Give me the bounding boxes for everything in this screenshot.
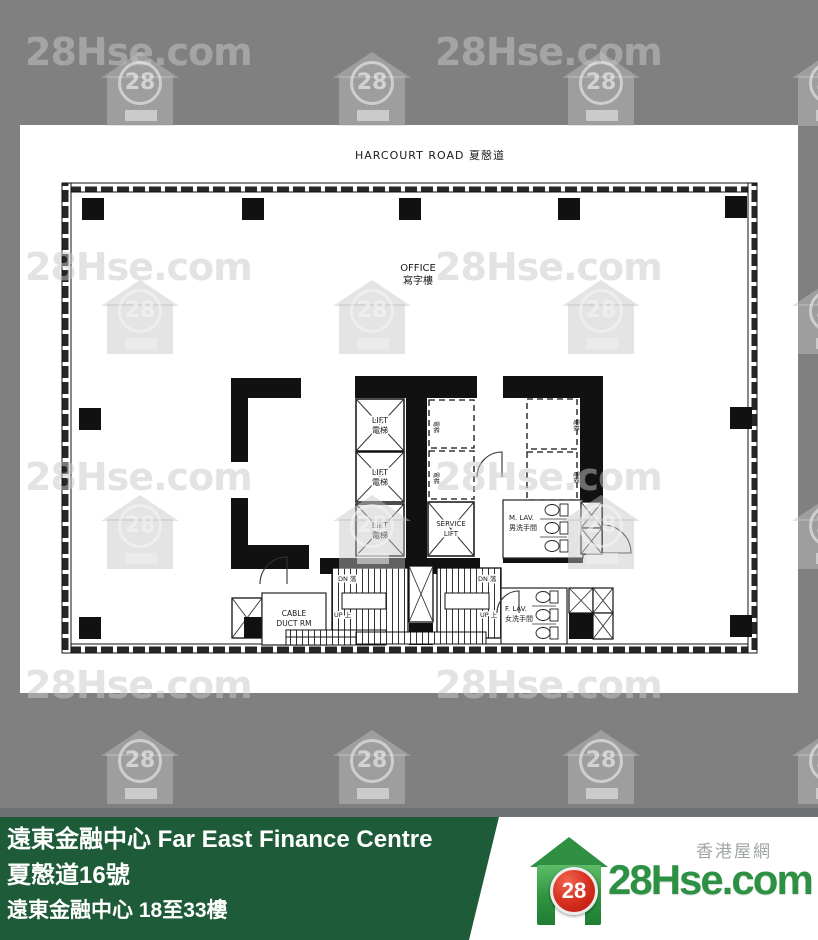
watermark-28-ring: 28	[809, 289, 818, 333]
staircase-right: DN 落 UP 上	[437, 568, 501, 638]
floorplan-drawing: HARCOURT ROAD 夏慤道 OFFICE 寫字樓	[20, 125, 798, 693]
watermark-roof	[792, 52, 818, 78]
office-label-zh: 寫字樓	[403, 274, 433, 287]
watermark-base	[357, 788, 389, 799]
watermark-house-logo-icon: 28	[792, 730, 818, 804]
watermark-base	[586, 110, 618, 121]
watermark-base	[125, 788, 157, 799]
brand-name: 28Hse.com	[608, 859, 812, 901]
watermark-body	[798, 754, 818, 804]
watermark-body	[107, 76, 173, 126]
svg-text:電梯: 電梯	[432, 421, 440, 433]
watermark-roof	[792, 730, 818, 756]
watermark-28-ring: 28	[579, 739, 623, 783]
watermark-text: 28Hse.com	[25, 30, 252, 74]
watermark-body	[568, 754, 634, 804]
watermark-roof	[101, 52, 179, 78]
ramp-strips	[286, 630, 486, 645]
office-label-en: OFFICE	[400, 263, 436, 274]
watermark-base	[357, 110, 389, 121]
watermark-28-ring: 28	[809, 504, 818, 548]
svg-text:電梯: 電梯	[572, 419, 580, 431]
building-address: 夏慤道16號	[7, 858, 432, 894]
brand-site-chinese: 香港屋網	[696, 837, 772, 862]
watermark-house-logo-icon: 28	[792, 52, 818, 126]
page: { "page": { "background": "#808080" }, "…	[0, 0, 818, 940]
watermark-house-logo-icon: 28	[101, 730, 179, 804]
duct-shafts-female	[569, 588, 613, 639]
watermark-text: 28Hse.com	[435, 30, 662, 74]
svg-text:UP 上: UP 上	[480, 610, 498, 619]
lift-shaft-dashed-4: 電梯	[527, 452, 580, 500]
watermark-28-ring: 28	[579, 61, 623, 105]
svg-text:LIFT: LIFT	[444, 530, 459, 538]
lift-shaft-dashed-1: 電梯	[429, 400, 474, 448]
duct-shafts-male	[581, 502, 602, 554]
lift-2: LIFT 電梯	[356, 452, 404, 502]
road-label: HARCOURT ROAD 夏慤道	[355, 148, 505, 162]
building-name: 遠東金融中心 Far East Finance Centre	[7, 822, 432, 858]
male-lavatory: M. LAV. 男洗手間	[503, 500, 602, 558]
watermark-house-logo-icon: 28	[562, 730, 640, 804]
watermark-body	[339, 754, 405, 804]
building-info: 遠東金融中心 Far East Finance Centre 夏慤道16號 遠東…	[7, 822, 432, 928]
footer: 遠東金融中心 Far East Finance Centre 夏慤道16號 遠東…	[0, 817, 818, 940]
building-floors: 遠東金融中心 18至33樓	[7, 894, 432, 928]
watermark-house-logo-icon: 28	[101, 52, 179, 126]
lift-3: LIFT 電梯	[356, 504, 404, 556]
watermark-house-logo-icon: 28	[562, 52, 640, 126]
watermark-roof	[333, 730, 411, 756]
28hse-house-logo-icon: 28	[530, 837, 608, 925]
svg-text:電梯: 電梯	[572, 471, 580, 483]
svg-text:電梯: 電梯	[372, 425, 388, 435]
watermark-body	[798, 304, 818, 354]
svg-text:UP 上: UP 上	[334, 610, 352, 619]
lift-shaft-dashed-3: 電梯	[527, 399, 580, 449]
svg-text:M. LAV.: M. LAV.	[509, 514, 534, 522]
svg-text:女洗手間: 女洗手間	[505, 614, 533, 623]
watermark-house-logo-icon: 28	[333, 52, 411, 126]
toilet-fixtures-female	[536, 591, 558, 639]
floorplan-sheet: HARCOURT ROAD 夏慤道 OFFICE 寫字樓	[20, 125, 798, 693]
watermark-base	[125, 110, 157, 121]
svg-text:DN 落: DN 落	[338, 574, 357, 583]
watermark-roof	[562, 730, 640, 756]
watermark-28-ring: 28	[809, 739, 818, 783]
svg-text:F. LAV.: F. LAV.	[505, 605, 527, 613]
logo-roof	[530, 837, 608, 867]
svg-text:SERVICE: SERVICE	[436, 520, 466, 528]
svg-text:電梯: 電梯	[372, 477, 388, 487]
female-lavatory: F. LAV. 女洗手間	[501, 588, 613, 644]
svg-text:LIFT: LIFT	[372, 521, 388, 530]
watermark-28-ring: 28	[350, 739, 394, 783]
watermark-body	[107, 754, 173, 804]
watermark-body	[798, 519, 818, 569]
toilet-fixtures-male	[545, 504, 568, 552]
office-zone-label: OFFICE 寫字樓	[400, 263, 436, 287]
svg-text:電梯: 電梯	[432, 472, 440, 484]
svg-text:男洗手間: 男洗手間	[509, 523, 537, 532]
watermark-base	[586, 788, 618, 799]
service-lift: SERVICE LIFT	[428, 502, 474, 556]
watermark-28-ring: 28	[809, 61, 818, 105]
core-left-wall	[231, 378, 345, 574]
brand-block: 28 28Hse.com 香港屋網	[528, 817, 818, 940]
footer-divider-strip	[0, 808, 818, 817]
watermark-body	[568, 76, 634, 126]
watermark-28-ring: 28	[118, 739, 162, 783]
watermark-28-ring: 28	[118, 61, 162, 105]
watermark-body	[339, 76, 405, 126]
watermark-body	[798, 76, 818, 126]
watermark-roof	[562, 52, 640, 78]
lift-shaft-dashed-2: 電梯	[429, 451, 474, 499]
svg-text:CABLE: CABLE	[282, 609, 307, 618]
lift-1: LIFT 電梯	[356, 399, 404, 451]
svg-text:電梯: 電梯	[372, 530, 388, 540]
svg-text:LIFT: LIFT	[372, 416, 388, 425]
watermark-roof	[333, 52, 411, 78]
svg-text:DUCT RM: DUCT RM	[276, 619, 311, 628]
watermark-house-logo-icon: 28	[333, 730, 411, 804]
logo-28-badge: 28	[550, 867, 598, 915]
staircase-left: DN 落 UP 上	[332, 568, 408, 638]
watermark-roof	[101, 730, 179, 756]
svg-text:DN 落: DN 落	[478, 574, 497, 583]
watermark-28-ring: 28	[350, 61, 394, 105]
svg-text:LIFT: LIFT	[372, 468, 388, 477]
